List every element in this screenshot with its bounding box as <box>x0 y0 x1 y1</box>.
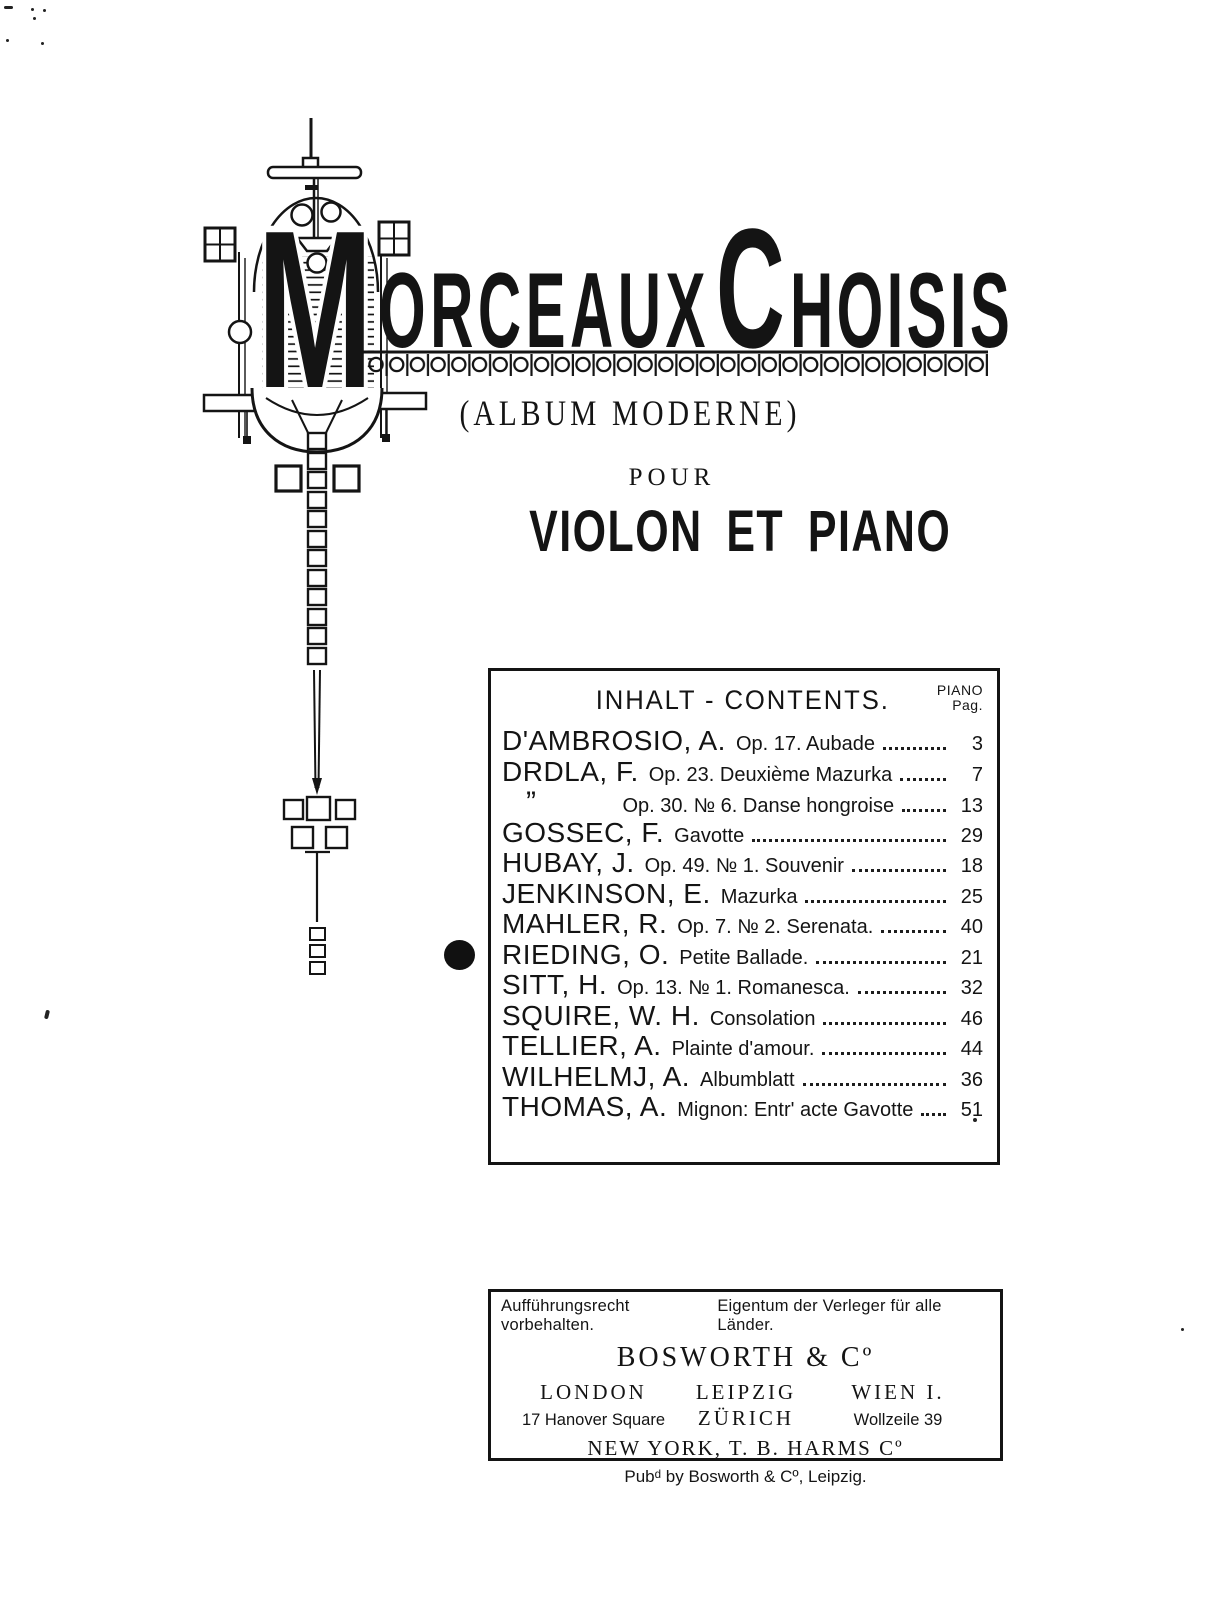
contents-row: GOSSEC, F.Gavotte29 <box>502 817 983 848</box>
scan-speck <box>44 1010 50 1020</box>
contents-row: SQUIRE, W. H.Consolation46 <box>502 1000 983 1031</box>
page-number: 44 <box>949 1038 983 1061</box>
title-initial-m: M <box>257 184 373 435</box>
work-title: Op. 13. № 1. Romanesca. <box>617 977 850 1000</box>
contents-row: ”Op. 30. № 6. Danse hongroise13 <box>502 786 983 817</box>
scan-speck <box>4 6 13 9</box>
composer-name: GOSSEC, F. <box>502 817 664 849</box>
rights-notice-left: Aufführungsrecht vorbehalten. <box>501 1297 717 1335</box>
circle-band-ornament <box>360 352 988 379</box>
dotted-leader <box>900 778 946 781</box>
instrumentation-title: VIOLON ET PIANO <box>455 498 955 565</box>
scan-speck <box>973 1118 977 1122</box>
contents-row: RIEDING, O.Petite Ballade.21 <box>502 939 983 970</box>
composer-name: ” <box>502 786 613 820</box>
page-number: 25 <box>949 886 983 909</box>
pour-label: POUR <box>572 464 772 492</box>
work-title: Op. 23. Deuxième Mazurka <box>649 764 892 787</box>
dotted-leader <box>823 1022 946 1025</box>
page-number: 18 <box>949 855 983 878</box>
composer-name: JENKINSON, E. <box>502 878 711 910</box>
work-title: Consolation <box>710 1008 816 1031</box>
contents-row: MAHLER, R.Op. 7. № 2. Serenata.40 <box>502 908 983 939</box>
contents-header: INHALT - CONTENTS. PIANO Pag. <box>502 683 983 725</box>
contents-row: HUBAY, J.Op. 49. № 1. Souvenir18 <box>502 847 983 878</box>
publisher-newyork-line: NEW YORK, T. B. HARMS Cº <box>501 1436 990 1461</box>
work-title: Op. 49. № 1. Souvenir <box>645 855 844 878</box>
rights-notice-row: Aufführungsrecht vorbehalten. Eigentum d… <box>501 1297 990 1335</box>
composer-name: SQUIRE, W. H. <box>502 1000 700 1032</box>
subtitle-album-moderne: (ALBUM MODERNE) <box>380 392 880 434</box>
contents-row: THOMAS, A.Mignon: Entr' acte Gavotte51 <box>502 1091 983 1122</box>
publisher-cities-row: LONDON LEIPZIG WIEN I. <box>501 1374 990 1405</box>
contents-row: SITT, H.Op. 13. № 1. Romanesca.32 <box>502 969 983 1000</box>
dotted-leader <box>805 900 946 903</box>
page-number: 36 <box>949 1069 983 1092</box>
composer-name: WILHELMJ, A. <box>502 1061 690 1093</box>
dotted-leader <box>752 839 946 842</box>
pag-label: Pag. <box>937 698 983 713</box>
composer-name: RIEDING, O. <box>502 939 669 971</box>
dotted-leader <box>803 1083 946 1086</box>
address-london: 17 Hanover Square <box>522 1411 665 1430</box>
scan-speck <box>31 8 34 11</box>
composer-name: DRDLA, F. <box>502 756 639 788</box>
page-number: 32 <box>949 977 983 1000</box>
contents-box: INHALT - CONTENTS. PIANO Pag. D'AMBROSIO… <box>488 668 1000 1165</box>
dotted-leader <box>921 1113 946 1116</box>
work-title: Gavotte <box>674 825 744 848</box>
sheet-music-cover-page: M ORCEAUX C HOISIS (ALBUM MODERNE) POUR … <box>0 0 1221 1600</box>
contents-list: D'AMBROSIO, A.Op. 17. Aubade3DRDLA, F.Op… <box>502 725 983 1122</box>
scan-speck <box>33 17 36 20</box>
publisher-box: Aufführungsrecht vorbehalten. Eigentum d… <box>488 1289 1003 1461</box>
page-number: 40 <box>949 916 983 939</box>
work-title: Plainte d'amour. <box>672 1038 815 1061</box>
contents-row: WILHELMJ, A.Albumblatt36 <box>502 1061 983 1092</box>
city-wien: WIEN I. <box>851 1380 944 1405</box>
contents-row: JENKINSON, E.Mazurka25 <box>502 878 983 909</box>
dotted-leader <box>816 961 946 964</box>
contents-row: DRDLA, F.Op. 23. Deuxième Mazurka7 <box>502 756 983 787</box>
page-number: 7 <box>949 764 983 787</box>
address-wien: Wollzeile 39 <box>854 1411 943 1430</box>
page-number: 51 <box>949 1099 983 1122</box>
dotted-leader <box>852 869 946 872</box>
city-london: LONDON <box>540 1380 647 1405</box>
page-number: 13 <box>949 795 983 818</box>
composer-name: HUBAY, J. <box>502 847 635 879</box>
composer-name: THOMAS, A. <box>502 1091 667 1123</box>
work-title: Petite Ballade. <box>679 947 808 970</box>
contents-row: TELLIER, A.Plainte d'amour.44 <box>502 1030 983 1061</box>
work-title: Mazurka <box>721 886 798 909</box>
dotted-leader <box>881 930 946 933</box>
rights-notice-right: Eigentum der Verleger für alle Länder. <box>717 1297 990 1335</box>
work-title: Op. 7. № 2. Serenata. <box>677 916 873 939</box>
publisher-name: BOSWORTH & Cº <box>501 1342 990 1374</box>
city-zurich: ZÜRICH <box>698 1406 794 1431</box>
work-title: Op. 17. Aubade <box>736 733 875 756</box>
page-number: 46 <box>949 1008 983 1031</box>
page-number: 29 <box>949 825 983 848</box>
composer-name: MAHLER, R. <box>502 908 667 940</box>
composer-name: D'AMBROSIO, A. <box>502 725 726 757</box>
piano-label: PIANO <box>937 683 983 698</box>
dotted-leader <box>902 809 946 812</box>
page-number: 3 <box>949 733 983 756</box>
dotted-leader <box>858 991 946 994</box>
work-title: Mignon: Entr' acte Gavotte <box>677 1099 913 1122</box>
work-title: Op. 30. № 6. Danse hongroise <box>623 795 895 818</box>
scan-speck <box>43 9 46 12</box>
work-title: Albumblatt <box>700 1069 795 1092</box>
composer-name: TELLIER, A. <box>502 1030 662 1062</box>
page-number: 21 <box>949 947 983 970</box>
city-leipzig: LEIPZIG <box>696 1380 796 1405</box>
composer-name: SITT, H. <box>502 969 607 1001</box>
scan-speck <box>6 39 9 42</box>
dotted-leader <box>883 747 946 750</box>
dotted-leader <box>822 1052 946 1055</box>
contents-row: D'AMBROSIO, A.Op. 17. Aubade3 <box>502 725 983 756</box>
scan-speck <box>1181 1328 1184 1331</box>
publisher-addresses-row: 17 Hanover Square ZÜRICH Wollzeile 39 <box>501 1405 990 1431</box>
scan-speck <box>41 42 44 45</box>
publisher-imprint: Pubᵈ by Bosworth & Cº, Leipzig. <box>501 1467 990 1487</box>
contents-heading: INHALT - CONTENTS. <box>502 685 983 716</box>
piano-page-column-header: PIANO Pag. <box>937 683 983 712</box>
